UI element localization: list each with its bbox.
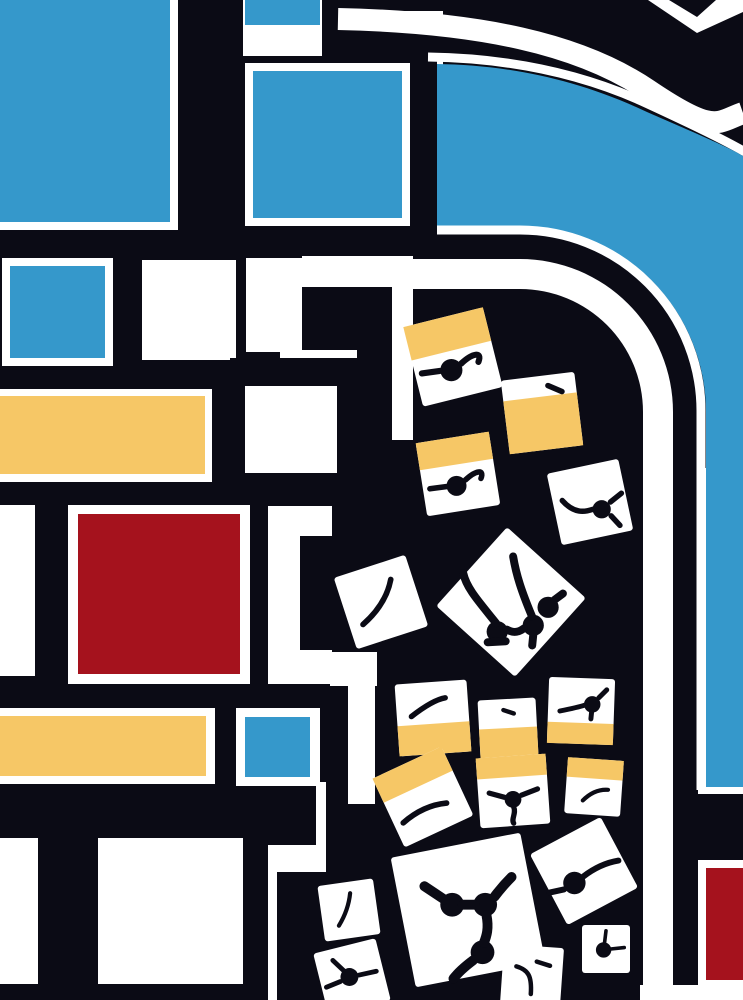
tile-15 [317, 878, 380, 941]
tile-15-paper [317, 878, 380, 941]
motif-stroke [513, 807, 515, 823]
abstract-geometric-painting [0, 0, 743, 1000]
tile-9 [547, 677, 615, 745]
artwork-stage [0, 0, 743, 1000]
red-block [78, 514, 240, 674]
tile-3 [416, 432, 501, 517]
tile-11 [476, 754, 551, 829]
tile-7 [395, 680, 472, 757]
tile-2-yellow-band [503, 392, 583, 454]
meander-vert-a [348, 686, 375, 804]
bottom-right-white-strip [640, 985, 743, 1000]
yellow-row-block [0, 396, 205, 474]
motif-dot [596, 942, 611, 957]
motif-stroke [484, 915, 488, 943]
motif-stroke [550, 889, 564, 892]
motif-stroke [554, 594, 562, 600]
rowb-white-square-2 [142, 260, 236, 360]
right-red-block [706, 868, 743, 980]
meander-slot-b [277, 845, 326, 872]
tile-4 [547, 459, 634, 546]
maze-white-slot-1 [280, 350, 357, 359]
motif-stroke [532, 635, 533, 646]
motif-stroke [422, 371, 440, 373]
yellow-row2-block [0, 716, 206, 776]
motif-stroke [430, 487, 446, 489]
framed-blue-block [253, 71, 402, 218]
maze-white-square [245, 386, 337, 473]
tile-18 [582, 925, 630, 973]
meander-vert-c [268, 845, 277, 1000]
tile-12 [564, 757, 624, 817]
bottom-white-square-2 [98, 838, 243, 984]
tile-17 [500, 944, 564, 1000]
top-small-blue-block [245, 0, 320, 25]
motif-stroke [488, 641, 506, 642]
tile-8 [478, 698, 539, 759]
tile-4-paper [547, 459, 634, 546]
motif-stroke [611, 948, 624, 949]
tile-2 [501, 372, 583, 454]
top-left-blue-block [0, 0, 170, 222]
bottom-white-strip-1 [0, 838, 38, 984]
maze-white-col-left [246, 258, 302, 352]
tile-12-yellow-band [567, 757, 624, 780]
meander-vert-b [316, 782, 326, 845]
motif-stroke [507, 629, 524, 632]
motif-stroke [605, 931, 606, 943]
motif-stroke [591, 712, 592, 719]
rowb-blue-block [10, 266, 105, 358]
maze-black-notch [300, 536, 332, 650]
meander-slot-a [330, 652, 377, 686]
tile-8-yellow-band [479, 726, 538, 758]
mondrian-grid-layer [0, 0, 743, 1000]
small-blue-block [245, 717, 310, 777]
maze-black-block [302, 287, 392, 350]
red-row-white-strip [0, 505, 35, 676]
tile-9-yellow-band [547, 722, 614, 745]
